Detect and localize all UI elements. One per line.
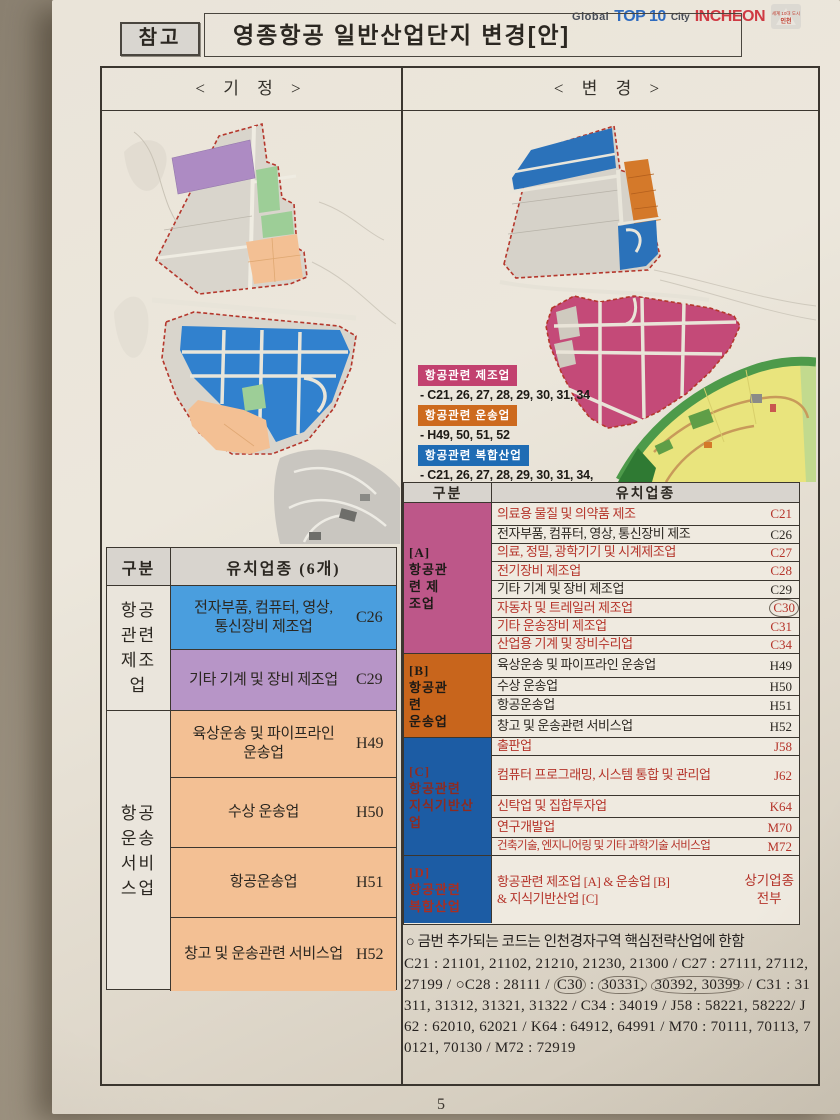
table-row: 기타 기계 및 장비 제조업 C29 <box>171 650 396 711</box>
col-header-industries: 유치업종 <box>492 483 799 503</box>
table-row: 육상운송 및 파이프라인 운송업 H49 <box>171 711 396 778</box>
legend-chip-transport: 항공관련 운송업 <box>418 405 517 426</box>
table-row: 창고 및 운송관련 서비스업H52 <box>492 716 799 738</box>
table-row: 컴퓨터 프로그래밍, 시스템 통합 및 관리업J62 <box>492 756 799 796</box>
table-row: 의료용 물질 및 의약품 제조C21 <box>492 503 799 526</box>
group-label-c-knowledge: [C] 항공관련 지식기반산 업 <box>404 738 492 856</box>
footnote-codes: ○ 금번 추가되는 코드는 인천경자구역 핵심전략산업에 한함 C21 : 21… <box>404 928 811 1059</box>
page-number: 5 <box>437 1096 445 1114</box>
svg-text:세계 10대 도시: 세계 10대 도시 <box>772 10 800 17</box>
table-row: 연구개발업M70 <box>492 818 799 838</box>
table-row: 수상 운송업H50 <box>492 678 799 696</box>
pen-circle-30392: 30392, 30399 <box>651 976 743 994</box>
paper-sheet: Global TOP 10 City INCHEON 세계 10대 도시 인천 … <box>52 0 840 1114</box>
table-row: 출판업J58 <box>492 738 799 756</box>
footnote-bullet: ○ 금번 추가되는 코드는 인천경자구역 핵심전략산업에 한함 <box>406 930 811 951</box>
svg-text:인천: 인천 <box>780 17 792 25</box>
content-frame: < 기 정 > < 변 경 > <box>100 66 820 1086</box>
table-row: 건축기술, 엔지니어링 및 기타 과학기술 서비스업M72 <box>492 838 799 856</box>
pen-circled-code: C30 <box>769 599 799 617</box>
table-row: 항공관련 제조업 [A] & 운송업 [B] & 지식기반산업 [C] 상기업종… <box>492 856 799 923</box>
legend-chip-complex: 항공관련 복합산업 <box>418 445 529 466</box>
pen-circle-30331: 30331, <box>598 976 647 994</box>
footnote-body: C21 : 21101, 21102, 21210, 21230, 21300 … <box>404 954 811 1059</box>
legend-codes-transport: - H49, 50, 51, 52 <box>420 428 700 442</box>
col-header-category: 구분 <box>107 548 171 586</box>
page-title: 영종항공 일반산업단지 변경[안] <box>204 13 742 57</box>
table-row: 전자부품, 컴퓨터, 영상, 통신장비 제조업 C26 <box>171 586 396 650</box>
group-label-manufacturing: 항공 관련 제조 업 <box>107 586 171 711</box>
col-header-industries: 유치업종 (6개) <box>171 548 396 586</box>
legend-codes-manufacturing: - C21, 26, 27, 28, 29, 30, 31, 34 <box>420 388 700 402</box>
table-row: 수상 운송업 H50 <box>171 778 396 848</box>
existing-industry-table: 구분 유치업종 (6개) 항공 관련 제조 업 전자부품, 컴퓨터, 영상, 통… <box>106 547 397 990</box>
table-row: 기타 운송장비 제조업C31 <box>492 618 799 636</box>
table-row: 기타 기계 및 장비 제조업C29 <box>492 581 799 599</box>
pen-circle-c30: C30 <box>554 976 586 994</box>
table-row: 전기장비 제조업C28 <box>492 562 799 581</box>
legend-chip-manufacturing: 항공관련 제조업 <box>418 365 517 386</box>
group-label-a-manufacturing: [A] 항공관 련 제 조업 <box>404 503 492 654</box>
existing-plan-map <box>104 112 400 544</box>
changed-industry-table: 구분 유치업종 [A] 항공관 련 제 조업 의료용 물질 및 의약품 제조C2… <box>403 482 800 925</box>
panel-title-existing: < 기 정 > <box>102 68 401 111</box>
legend-codes-complex-1: - C21, 26, 27, 28, 29, 30, 31, 34, <box>420 468 700 482</box>
table-row: 육상운송 및 파이프라인 운송업H49 <box>492 654 799 678</box>
table-row: 신탁업 및 집합투자업K64 <box>492 796 799 818</box>
panel-title-changed: < 변 경 > <box>402 68 818 111</box>
group-label-transport-services: 항공 운송 서비 스업 <box>107 711 171 991</box>
incheon-emblem-icon: 세계 10대 도시 인천 <box>770 3 802 31</box>
ref-label: 참고 <box>120 22 200 56</box>
table-row: 산업용 기계 및 장비수리업C34 <box>492 636 799 654</box>
table-row: 전자부품, 컴퓨터, 영상, 통신장비 제조C26 <box>492 526 799 544</box>
table-row: 창고 및 운송관련 서비스업 H52 <box>171 918 396 991</box>
table-row: 자동차 및 트레일러 제조업C30 <box>492 599 799 618</box>
table-row: 항공운송업 H51 <box>171 848 396 918</box>
table-row: 의료, 정밀, 광학기기 및 시계제조업C27 <box>492 544 799 562</box>
table-row: 항공운송업H51 <box>492 696 799 716</box>
group-label-b-transport: [B] 항공관 련 운송업 <box>404 654 492 738</box>
col-header-category: 구분 <box>404 483 492 503</box>
group-label-d-complex: [D] 항공관련 복합산업 <box>404 856 492 923</box>
